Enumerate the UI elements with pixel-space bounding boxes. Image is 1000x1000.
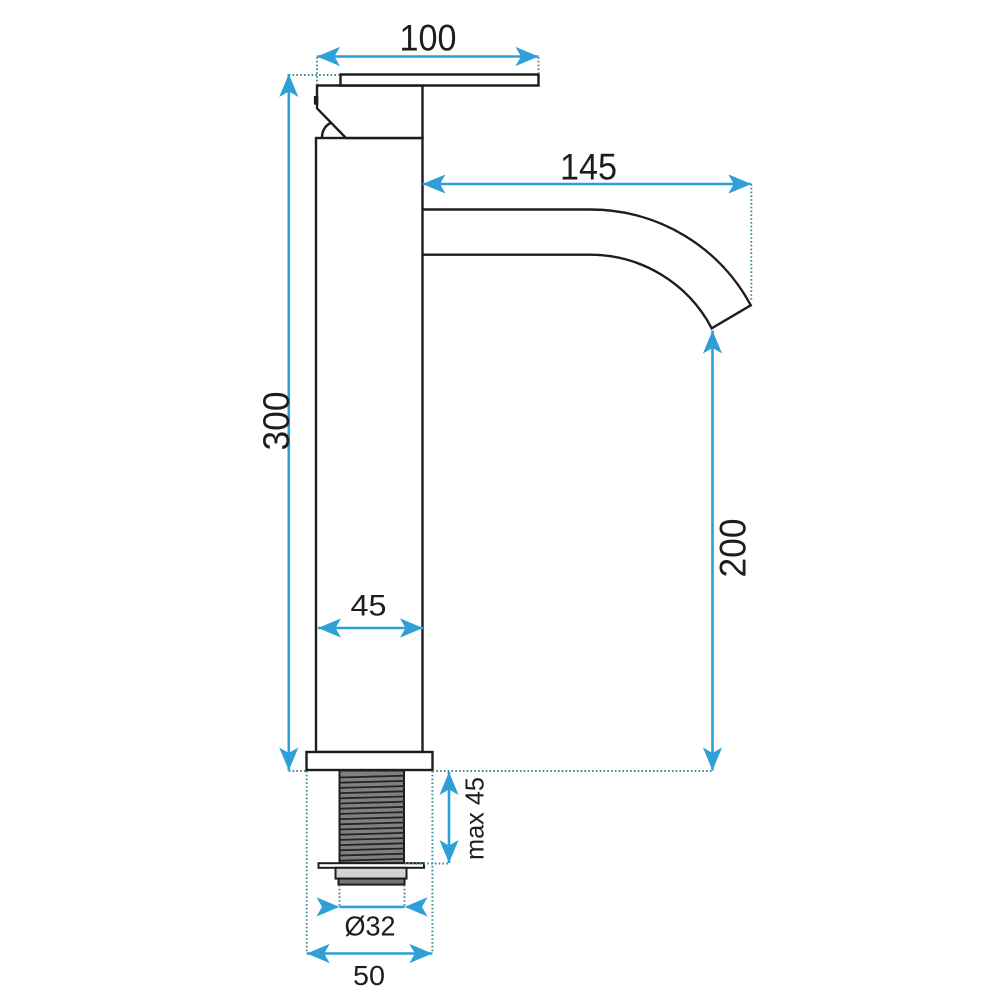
svg-text:Ø32: Ø32 xyxy=(345,911,396,942)
svg-text:max 45: max 45 xyxy=(460,777,490,860)
svg-text:200: 200 xyxy=(712,519,754,578)
svg-text:45: 45 xyxy=(351,590,387,623)
svg-text:145: 145 xyxy=(560,146,617,188)
svg-text:100: 100 xyxy=(400,17,457,59)
svg-text:50: 50 xyxy=(353,960,385,991)
svg-text:300: 300 xyxy=(255,392,297,451)
